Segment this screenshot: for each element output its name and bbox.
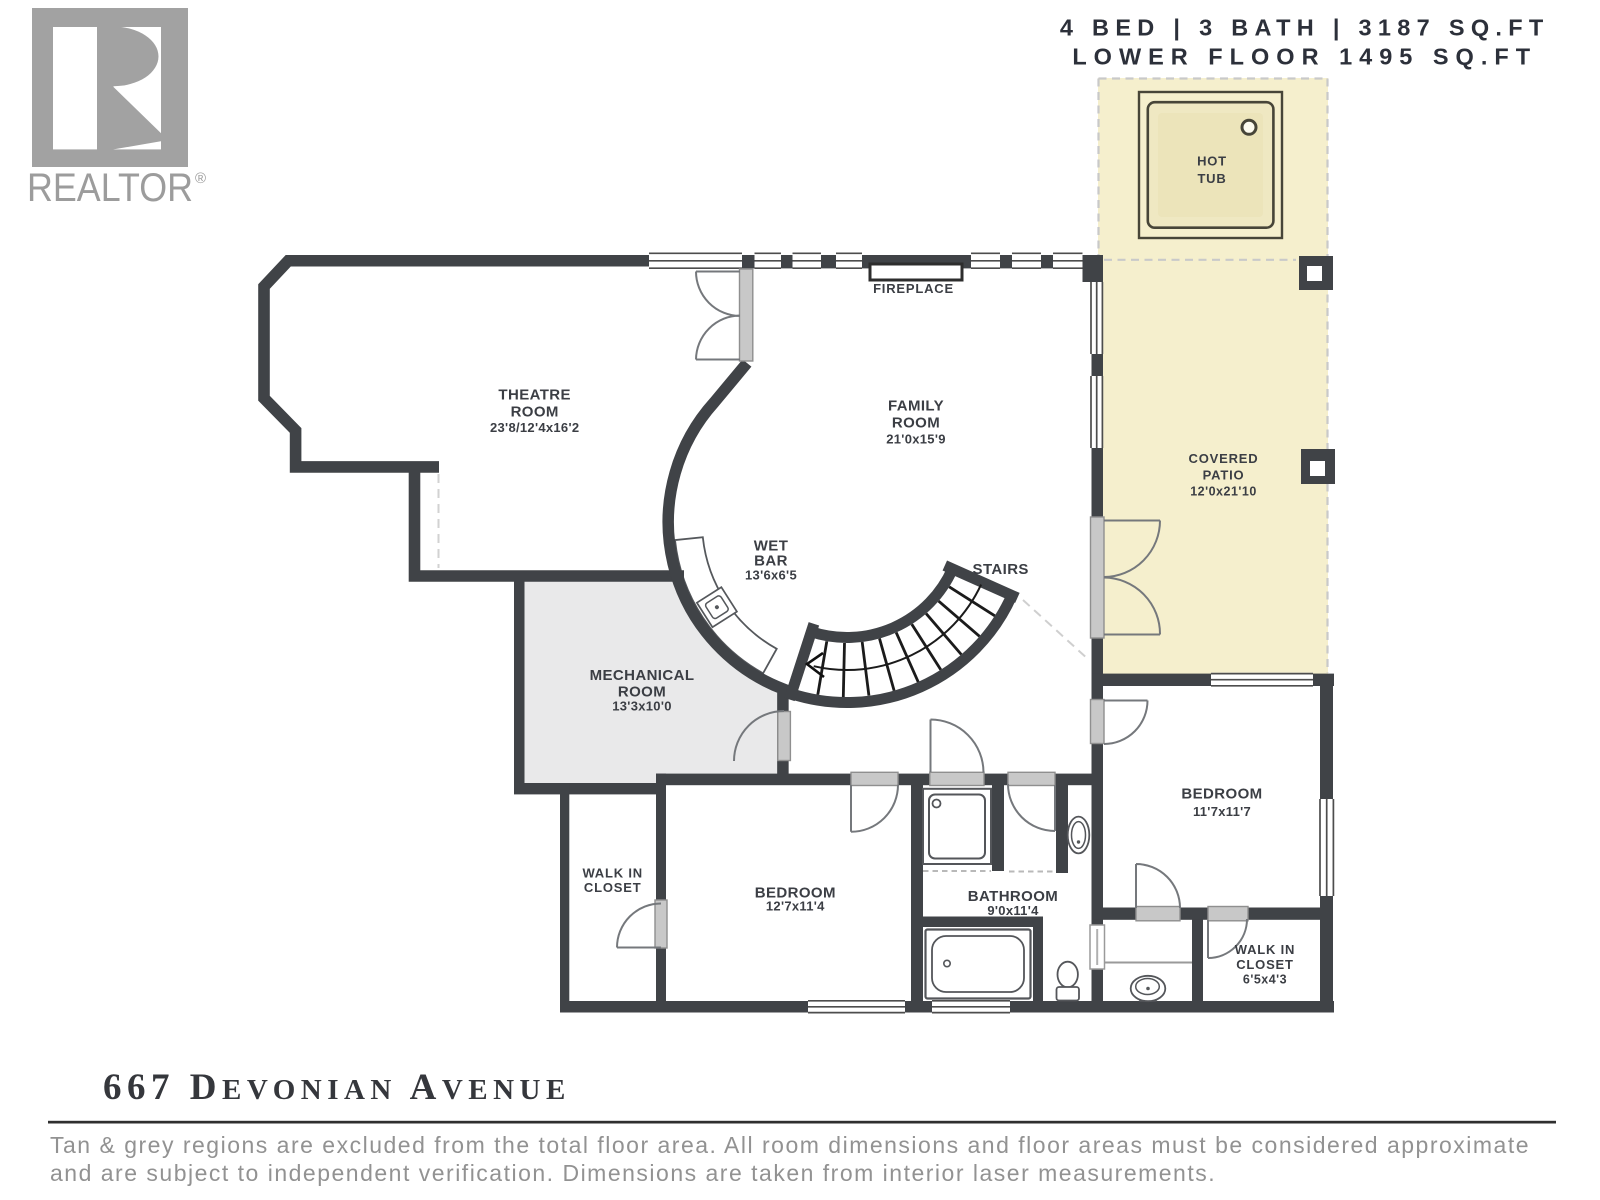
svg-text:667 DEVONIAN AVENUE: 667 DEVONIAN AVENUE [103, 1067, 571, 1108]
svg-text:REALTOR: REALTOR [27, 166, 193, 210]
svg-text:9'0x11'4: 9'0x11'4 [987, 903, 1039, 918]
svg-text:ROOM: ROOM [511, 403, 559, 420]
svg-text:6'5x4'3: 6'5x4'3 [1243, 973, 1287, 987]
svg-text:BEDROOM: BEDROOM [1181, 786, 1262, 803]
svg-text:4 BED | 3 BATH | 3187 SQ.FT: 4 BED | 3 BATH | 3187 SQ.FT [1060, 15, 1550, 41]
svg-text:and are subject to independent: and are subject to independent verificat… [50, 1160, 1216, 1186]
svg-text:FIREPLACE: FIREPLACE [873, 281, 954, 296]
svg-text:CLOSET: CLOSET [1236, 957, 1294, 972]
svg-text:CLOSET: CLOSET [584, 880, 642, 895]
svg-text:FAMILY: FAMILY [888, 398, 944, 415]
svg-text:LOWER FLOOR 1495 SQ.FT: LOWER FLOOR 1495 SQ.FT [1072, 44, 1537, 70]
svg-text:WALK IN: WALK IN [582, 865, 642, 880]
svg-text:12'7x11'4: 12'7x11'4 [766, 899, 825, 914]
svg-text:13'6x6'5: 13'6x6'5 [745, 567, 797, 582]
svg-text:PATIO: PATIO [1203, 468, 1245, 483]
svg-text:COVERED: COVERED [1189, 451, 1259, 466]
svg-text:THEATRE: THEATRE [498, 386, 571, 403]
svg-text:21'0x15'9: 21'0x15'9 [886, 431, 946, 446]
svg-text:11'7x11'7: 11'7x11'7 [1193, 804, 1251, 819]
svg-text:12'0x21'10: 12'0x21'10 [1190, 485, 1257, 499]
svg-text:HOT: HOT [1197, 153, 1227, 168]
svg-text:23'8/12'4x16'2: 23'8/12'4x16'2 [490, 420, 579, 435]
svg-text:13'3x10'0: 13'3x10'0 [612, 698, 672, 713]
svg-text:MECHANICAL: MECHANICAL [590, 667, 695, 684]
svg-text:TUB: TUB [1197, 171, 1226, 186]
svg-text:ROOM: ROOM [892, 415, 940, 432]
svg-text:Tan & grey regions are exclude: Tan & grey regions are excluded from the… [50, 1132, 1530, 1158]
svg-text:®: ® [195, 170, 206, 187]
svg-text:STAIRS: STAIRS [973, 561, 1029, 578]
svg-text:WALK IN: WALK IN [1235, 942, 1295, 957]
